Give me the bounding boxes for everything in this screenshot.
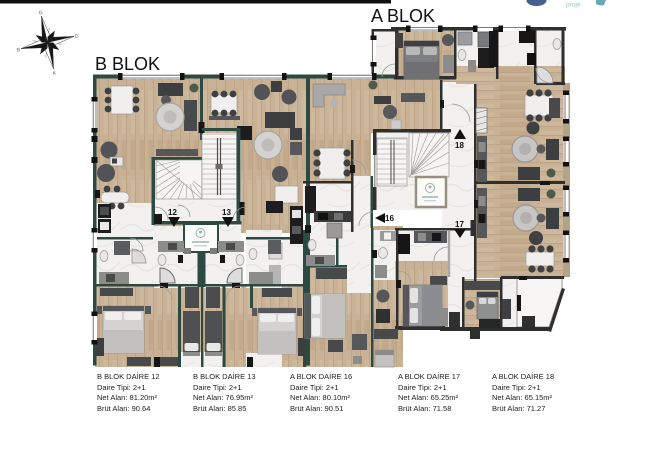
svg-text:12: 12 xyxy=(168,208,177,217)
svg-text:18: 18 xyxy=(455,141,464,150)
svg-text:17: 17 xyxy=(455,220,464,229)
svg-text:B BLOK: B BLOK xyxy=(95,54,160,74)
svg-text:proje: proje xyxy=(566,2,581,9)
svg-text:13: 13 xyxy=(222,208,231,217)
svg-text:A BLOK: A BLOK xyxy=(371,6,435,26)
svg-text:16: 16 xyxy=(385,214,394,223)
